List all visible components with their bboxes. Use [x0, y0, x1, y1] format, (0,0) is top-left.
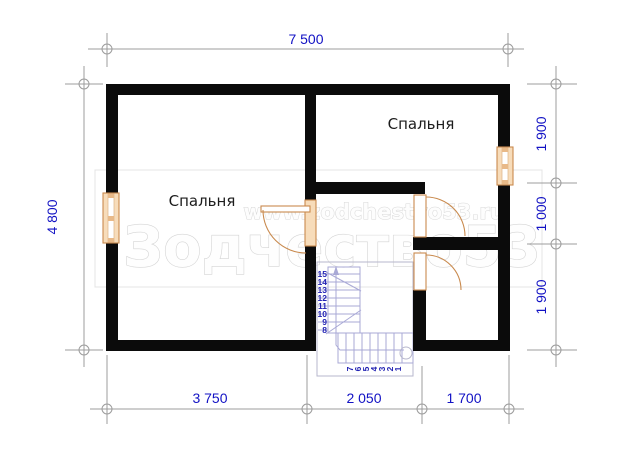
floor-plan-canvas: www.zodchestvo53.ru Зодчество53: [0, 0, 640, 470]
dim-right-1: 1 900: [533, 116, 549, 151]
dim-right-3: 1 900: [533, 279, 549, 314]
wall-exterior-bottom-right: [413, 340, 510, 351]
wall-interior-middle-upper: [305, 84, 316, 201]
dim-top: 7 500: [288, 31, 323, 47]
window-right: [497, 147, 513, 185]
door-leaf: [261, 206, 310, 212]
dim-right-2: 1 000: [533, 196, 549, 231]
dim-bottom-2: 2 050: [346, 390, 381, 406]
room-label-bedroom-right: Спальня: [388, 115, 455, 133]
stair-step-number: 1: [393, 366, 403, 371]
wall-exterior-bottom-left: [106, 340, 316, 351]
wall-interior-bedroom2: [316, 182, 425, 194]
door-leaf: [414, 195, 426, 237]
door-leaf: [414, 253, 426, 290]
wall-interior-closet-top: [413, 237, 499, 250]
dim-bottom-1: 3 750: [192, 390, 227, 406]
dim-left: 4 800: [44, 199, 60, 234]
window-mullion: [108, 194, 114, 198]
wall-interior-middle-lower: [305, 246, 316, 351]
window-left: [103, 193, 119, 243]
window-mullion: [108, 238, 114, 242]
stair-step-number: 8: [322, 325, 327, 335]
room-label-bedroom-left: Спальня: [169, 192, 236, 210]
window-mullion: [502, 180, 508, 184]
dim-bottom-3: 1 700: [446, 390, 481, 406]
window-mullion: [108, 216, 114, 221]
window-mullion: [502, 148, 508, 152]
wall-exterior-right: [498, 84, 510, 351]
wall-interior-closet-left: [413, 290, 426, 341]
window-mullion: [502, 164, 508, 169]
